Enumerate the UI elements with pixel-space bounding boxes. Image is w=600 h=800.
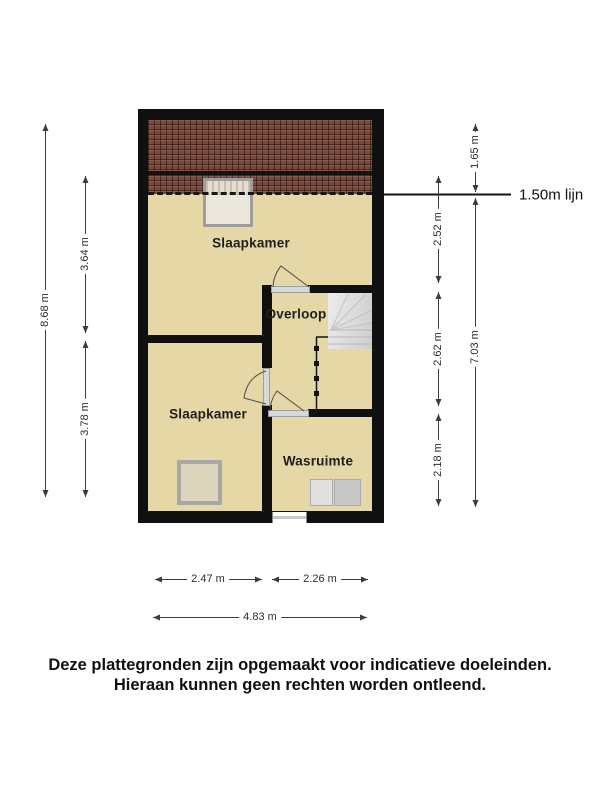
dim-bottom-right: 2.26 m xyxy=(299,573,341,585)
door-top-bedroom-icon xyxy=(271,286,310,293)
dim-bottom-left: 2.47 m xyxy=(187,573,229,585)
dim-right-inner-top: 2.52 m xyxy=(432,209,444,249)
stairs-icon xyxy=(328,293,373,349)
floorplan-page: Slaapkamer Overloop Slaapkamer Wasruimte xyxy=(0,0,600,800)
wall-overloop-top xyxy=(308,285,372,293)
wall-divider-lower xyxy=(262,405,272,511)
dryer-icon xyxy=(334,479,361,506)
roof-edge-dashed-line xyxy=(148,192,372,195)
floor-object-icon xyxy=(177,460,222,505)
dim-right-total: 7.03 m xyxy=(469,327,481,367)
room-label-slaapkamer-top: Slaapkamer xyxy=(212,236,290,251)
room-label-slaapkamer-bottom: Slaapkamer xyxy=(169,407,247,422)
disclaimer: Deze plattegronden zijn opgemaakt voor i… xyxy=(0,655,600,695)
window-icon xyxy=(272,512,307,523)
skylight-icon xyxy=(203,178,253,227)
room-label-overloop: Overloop xyxy=(266,307,327,322)
disclaimer-line2: Hieraan kunnen geen rechten worden ontle… xyxy=(0,675,600,695)
dim-left-total: 8.68 m xyxy=(39,290,51,330)
washing-machine-icon xyxy=(310,479,333,506)
wall-outer-top xyxy=(138,109,384,120)
wall-divider-upper xyxy=(262,285,272,368)
attic-line-label: 1.50m lijn xyxy=(519,187,583,204)
dim-left-top: 3.64 m xyxy=(79,234,91,274)
dim-bottom-total: 4.83 m xyxy=(239,611,281,623)
wall-outer-bottom xyxy=(138,511,384,523)
wall-bedrooms-divider xyxy=(148,335,272,343)
dim-right-inner-bottom: 2.18 m xyxy=(432,440,444,480)
wall-outer-left xyxy=(138,109,148,523)
door-wasruimte-icon xyxy=(268,410,309,417)
window-sash-icon xyxy=(273,516,306,519)
wall-outer-right xyxy=(372,109,384,523)
wall-wasruimte-top xyxy=(308,409,372,417)
dim-left-bottom: 3.78 m xyxy=(79,399,91,439)
dim-right-inner-middle: 2.62 m xyxy=(432,329,444,369)
disclaimer-line1: Deze plattegronden zijn opgemaakt voor i… xyxy=(0,655,600,675)
roof-tiles-upper xyxy=(148,119,372,171)
dim-right-roof: 1.65 m xyxy=(469,132,481,172)
door-bottom-bedroom-icon xyxy=(263,368,270,406)
room-label-wasruimte: Wasruimte xyxy=(283,454,353,469)
